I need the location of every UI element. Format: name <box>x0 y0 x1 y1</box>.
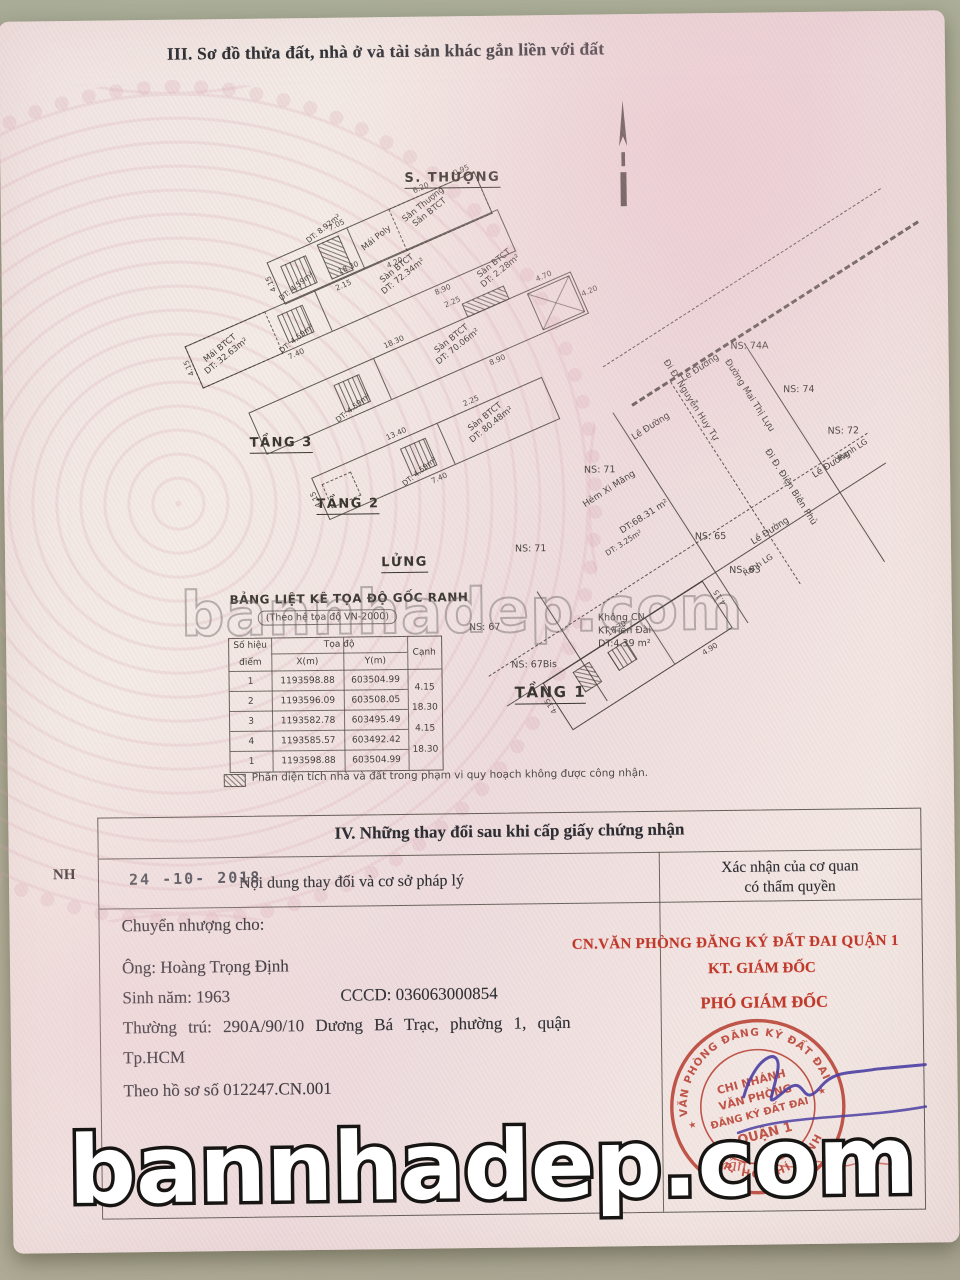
floor-label-mezzanine: LỬNG <box>381 555 428 574</box>
col-header-x: X(m) <box>271 657 343 668</box>
neighbor-label: NS: 74A <box>730 340 768 351</box>
partition-line <box>314 290 333 331</box>
roof-mai-poly: Mái Poly <box>360 223 394 253</box>
table-line <box>230 749 408 752</box>
table-line <box>230 689 408 692</box>
partition-line <box>373 359 392 400</box>
dim-label: 2.25 <box>461 393 480 408</box>
neighbor-label: NS: 67Bis <box>511 659 557 671</box>
point-id: 1 <box>231 757 273 768</box>
neighbor-label: NS: 71 <box>515 543 547 554</box>
certificate-page: III. Sơ đồ thửa đất, nhà ở và tài sản kh… <box>0 10 959 1253</box>
north-arrow-icon <box>608 100 639 220</box>
dim-label: 2.25 <box>443 294 462 309</box>
photo-of-certificate: { "colors":{"stamp_red":"#c0392b","signa… <box>0 0 960 1280</box>
edge-length: 18.30 <box>408 702 442 712</box>
house-hatch <box>572 662 602 693</box>
coord-x: 1193596.09 <box>272 696 344 707</box>
watermark-bottom: bannhadep.com <box>68 1107 916 1226</box>
table-line <box>229 668 441 672</box>
coord-y: 603492.42 <box>344 735 408 746</box>
col-header-edge: Cạnh <box>407 647 441 657</box>
dim-label: 4.15 <box>542 697 559 716</box>
neighbor-label: NS: 74 <box>783 384 815 395</box>
coord-y: 603508.05 <box>344 695 408 706</box>
edge-length: 4.15 <box>408 682 442 692</box>
dim-label: 4.15 <box>308 490 323 509</box>
partition-line <box>437 423 456 464</box>
watermark-middle: bannhadep.com <box>180 573 744 651</box>
date-stamp: 24 -10- 2018 <box>129 868 262 889</box>
point-id: 3 <box>230 717 272 728</box>
section4-title: IV. Những thay đổi sau khi cấp giấy chứn… <box>98 817 920 847</box>
address-city: Tp.HCM <box>123 1048 185 1069</box>
coord-x: 1193598.88 <box>272 676 344 687</box>
dim-label: 13.40 <box>385 425 408 442</box>
transfer-heading: Chuyển nhượng cho: <box>121 915 264 937</box>
col-header-content: Nội dung thay đổi và cơ sở pháp lý <box>239 872 464 893</box>
edge-length: 4.15 <box>408 723 442 733</box>
dim-label: 4.20 <box>580 283 599 298</box>
coordinate-table: Số hiệu điểm Tọa độ X(m) Y(m) Cạnh 1 119… <box>228 635 444 773</box>
dim-label: 4.70 <box>534 269 553 284</box>
margin-note: NH <box>53 867 76 884</box>
dim-label: 18.30 <box>382 333 405 350</box>
floor2-balcony <box>462 285 510 317</box>
dim-label: 8.90 <box>488 352 507 367</box>
section3-title: III. Sơ đồ thửa đất, nhà ở và tài sản kh… <box>167 38 605 64</box>
neighbor-label: NS: 72 <box>828 425 860 436</box>
point-id: 1 <box>230 677 272 688</box>
birth-year: Sinh năm: 1963 <box>122 987 230 1008</box>
col-header-point2: điểm <box>229 658 271 669</box>
address-line: Thường trú: 290A/90/10 Dương Bá Trạc, ph… <box>123 1013 571 1038</box>
neighbor-label: NS: 71 <box>584 464 616 475</box>
neighbor-label: NS: 65 <box>695 531 727 542</box>
plot-area-label: DT:68.31 m² <box>618 498 670 536</box>
coord-x: 1193598.88 <box>273 756 345 767</box>
dim-label: 7.40 <box>430 471 449 486</box>
coord-x: 1193585.57 <box>272 736 344 747</box>
street-mai-thi-luu: Đường Mai Thị Lựu <box>722 358 776 434</box>
dossier-number: Theo hồ sơ số 012247.CN.001 <box>123 1079 332 1102</box>
roof-hatched-area <box>317 235 354 279</box>
sidewalk-label: Lề Đường <box>750 516 792 548</box>
table-line <box>271 652 407 655</box>
col-header-confirm-1: Xác nhận của cơ quan <box>665 857 915 878</box>
street-dien-bien-phu: Đi Đ. Điện Biên Phủ <box>762 447 818 527</box>
point-id: 4 <box>230 737 272 748</box>
dim-label: 4.15 <box>263 275 278 294</box>
office-name: CN.VĂN PHÒNG ĐĂNG KÝ ĐẤT ĐAI QUẬN 1 <box>572 933 899 954</box>
sidewalk-label: Lề Đường <box>630 411 672 443</box>
col-header-confirm-2: có thẩm quyền <box>665 877 915 898</box>
coord-y: 603504.99 <box>345 755 409 766</box>
point-id: 2 <box>230 697 272 708</box>
table-line <box>230 709 408 712</box>
coord-y: 603495.49 <box>344 715 408 726</box>
coord-y: 603504.99 <box>344 675 408 686</box>
hatch-legend-icon <box>224 774 246 787</box>
open-well-outline <box>322 472 362 509</box>
col-header-y: Y(m) <box>343 656 407 667</box>
id-number: CCCD: 036063000854 <box>340 984 498 1006</box>
table-line <box>99 899 921 910</box>
floor2-main-label: Sàn BTCTDT: 70.06m² <box>428 319 482 368</box>
office-kt-giam-doc: KT. GIÁM ĐỐC <box>708 960 816 978</box>
edge-length: 18.30 <box>408 744 442 754</box>
void-cross-symbol <box>527 275 585 330</box>
coord-x: 1193582.78 <box>272 716 344 727</box>
transferee-name: Ông: Hoàng Trọng Định <box>122 956 289 978</box>
table-line <box>230 729 408 732</box>
dim-label: 8.90 <box>433 282 452 297</box>
